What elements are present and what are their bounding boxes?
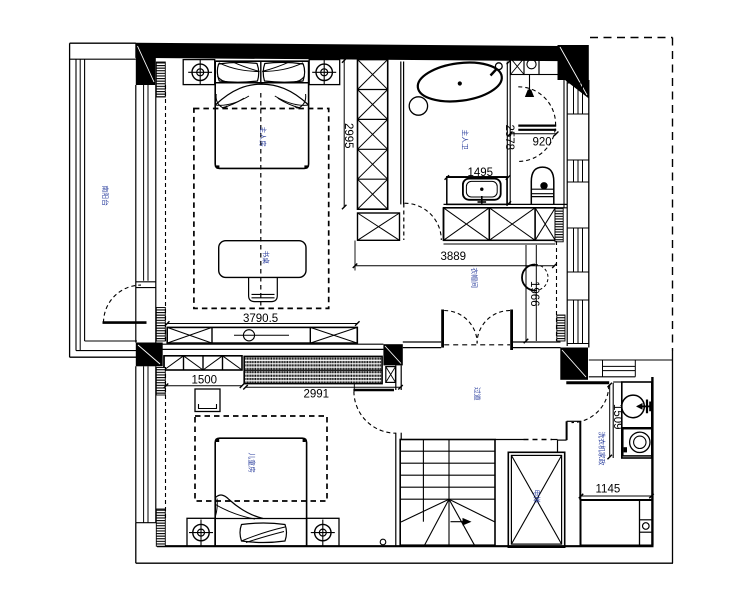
svg-text:电梯: 电梯 <box>533 490 542 504</box>
svg-text:洗衣机家政: 洗衣机家政 <box>598 432 607 466</box>
svg-text:儿童房: 儿童房 <box>248 453 257 474</box>
svg-text:主人卫: 主人卫 <box>461 130 470 151</box>
svg-text:1966: 1966 <box>528 281 540 307</box>
svg-text:2991: 2991 <box>304 389 330 401</box>
svg-text:过道: 过道 <box>473 387 482 401</box>
svg-text:920: 920 <box>533 137 552 149</box>
svg-text:衣帽间: 衣帽间 <box>470 268 479 289</box>
svg-text:南阳台: 南阳台 <box>101 186 110 207</box>
svg-text:1145: 1145 <box>596 484 621 496</box>
svg-text:1500: 1500 <box>192 375 218 387</box>
svg-text:2578: 2578 <box>503 125 515 151</box>
svg-text:2995: 2995 <box>342 123 354 149</box>
svg-text:主人房: 主人房 <box>259 127 268 148</box>
svg-text:书桌: 书桌 <box>262 251 271 265</box>
svg-text:3889: 3889 <box>441 251 467 263</box>
svg-text:1509: 1509 <box>611 404 623 430</box>
